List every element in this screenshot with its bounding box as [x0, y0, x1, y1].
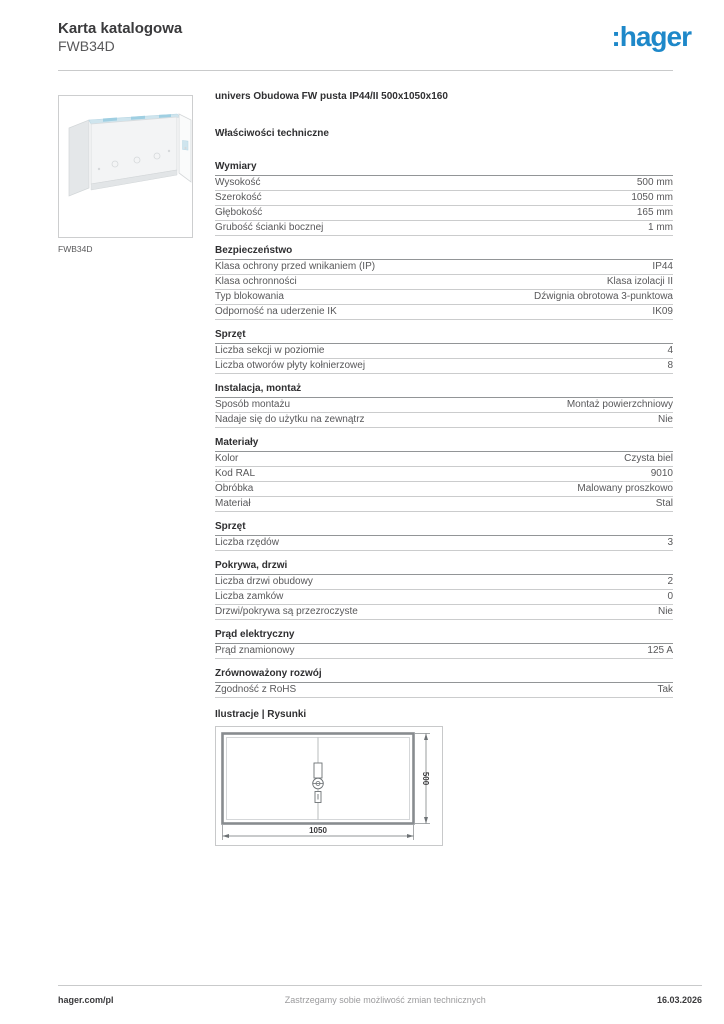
illustrations-heading: Ilustracje | Rysunki — [215, 708, 673, 721]
spec-label: Klasa ochronności — [215, 276, 297, 287]
spec-section: Instalacja, montaż Sposób montażuMontaż … — [215, 383, 673, 428]
spec-value: 8 — [667, 360, 673, 371]
section-title: Materiały — [215, 437, 673, 452]
spec-label: Głębokość — [215, 207, 262, 218]
spec-label: Szerokość — [215, 192, 262, 203]
spec-row: Grubość ścianki bocznej1 mm — [215, 221, 673, 236]
section-title: Bezpieczeństwo — [215, 245, 673, 260]
spec-value: 3 — [667, 537, 673, 548]
section-title: Zrównoważony rozwój — [215, 668, 673, 683]
spec-label: Materiał — [215, 498, 251, 509]
section-rows: Klasa ochrony przed wnikaniem (IP)IP44Kl… — [215, 260, 673, 320]
spec-value: Czysta biel — [624, 453, 673, 464]
spec-section: Prąd elektryczny Prąd znamionowy125 A — [215, 629, 673, 659]
product-title: univers Obudowa FW pusta IP44/II 500x105… — [215, 91, 673, 103]
spec-value: 1 mm — [648, 222, 673, 233]
spec-label: Sposób montażu — [215, 399, 290, 410]
spec-value: 125 A — [647, 645, 673, 656]
technical-drawing: 1050 500 — [215, 726, 443, 846]
drawing-width-dimension: 1050 — [309, 826, 327, 835]
footer-divider — [58, 985, 702, 986]
tech-properties-heading: Właściwości techniczne — [215, 128, 673, 140]
document-type-title: Karta katalogowa — [58, 20, 182, 38]
spec-value: Dźwignia obrotowa 3-punktowa — [534, 291, 673, 302]
spec-label: Klasa ochrony przed wnikaniem (IP) — [215, 261, 375, 272]
spec-section: Sprzęt Liczba sekcji w poziomie4Liczba o… — [215, 329, 673, 374]
spec-row: Liczba rzędów3 — [215, 536, 673, 551]
spec-label: Liczba zamków — [215, 591, 283, 602]
product-code-title: FWB34D — [58, 38, 182, 55]
spec-value: Malowany proszkowo — [577, 483, 673, 494]
section-rows: Wysokość500 mmSzerokość1050 mmGłębokość1… — [215, 176, 673, 236]
spec-value: 4 — [667, 345, 673, 356]
spec-label: Grubość ścianki bocznej — [215, 222, 323, 233]
spec-value: 165 mm — [637, 207, 673, 218]
footer-website-link[interactable]: hager.com/pl — [58, 995, 114, 1005]
spec-section: Wymiary Wysokość500 mmSzerokość1050 mmGł… — [215, 161, 673, 236]
spec-row: ObróbkaMalowany proszkowo — [215, 482, 673, 497]
footer: hager.com/pl Zastrzegamy sobie możliwość… — [58, 995, 702, 1005]
spec-label: Wysokość — [215, 177, 260, 188]
spec-row: Drzwi/pokrywa są przezroczysteNie — [215, 605, 673, 620]
spec-row: Wysokość500 mm — [215, 176, 673, 191]
section-title: Sprzęt — [215, 521, 673, 536]
product-image — [58, 95, 193, 238]
spec-row: Typ blokowaniaDźwignia obrotowa 3-punkto… — [215, 290, 673, 305]
spec-label: Nadaje się do użytku na zewnątrz — [215, 414, 365, 425]
dimension-drawing: 1050 500 — [216, 727, 442, 845]
product-image-caption: FWB34D — [58, 244, 92, 254]
spec-value: Nie — [658, 606, 673, 617]
spec-row: Kod RAL9010 — [215, 467, 673, 482]
section-rows: Zgodność z RoHSTak — [215, 683, 673, 698]
spec-value: Montaż powierzchniowy — [567, 399, 673, 410]
footer-disclaimer: Zastrzegamy sobie możliwość zmian techni… — [114, 995, 657, 1005]
spec-row: Szerokość1050 mm — [215, 191, 673, 206]
spec-value: IP44 — [652, 261, 673, 272]
spec-row: Liczba otworów płyty kołnierzowej8 — [215, 359, 673, 374]
spec-value: Stal — [656, 498, 673, 509]
spec-row: Głębokość165 mm — [215, 206, 673, 221]
spec-row: Klasa ochrony przed wnikaniem (IP)IP44 — [215, 260, 673, 275]
spec-value: 9010 — [651, 468, 673, 479]
drawing-height-dimension: 500 — [421, 772, 430, 786]
spec-label: Liczba sekcji w poziomie — [215, 345, 325, 356]
footer-date: 16.03.2026 — [657, 995, 702, 1005]
section-title: Instalacja, montaż — [215, 383, 673, 398]
spec-row: Liczba sekcji w poziomie4 — [215, 344, 673, 359]
spec-label: Zgodność z RoHS — [215, 684, 296, 695]
spec-value: Klasa izolacji II — [607, 276, 673, 287]
spec-label: Prąd znamionowy — [215, 645, 294, 656]
spec-row: Odporność na uderzenie IKIK09 — [215, 305, 673, 320]
spec-row: KolorCzysta biel — [215, 452, 673, 467]
spec-label: Drzwi/pokrywa są przezroczyste — [215, 606, 358, 617]
spec-row: Liczba zamków0 — [215, 590, 673, 605]
spec-row: Prąd znamionowy125 A — [215, 644, 673, 659]
spec-value: 2 — [667, 576, 673, 587]
spec-label: Liczba drzwi obudowy — [215, 576, 313, 587]
spec-label: Kolor — [215, 453, 238, 464]
section-title: Prąd elektryczny — [215, 629, 673, 644]
section-rows: Liczba rzędów3 — [215, 536, 673, 551]
spec-label: Odporność na uderzenie IK — [215, 306, 337, 317]
section-title: Pokrywa, drzwi — [215, 560, 673, 575]
spec-value: 0 — [667, 591, 673, 602]
spec-value: 1050 mm — [631, 192, 673, 203]
spec-section: Materiały KolorCzysta bielKod RAL9010Obr… — [215, 437, 673, 512]
section-title: Sprzęt — [215, 329, 673, 344]
spec-row: Klasa ochronnościKlasa izolacji II — [215, 275, 673, 290]
spec-row: Zgodność z RoHSTak — [215, 683, 673, 698]
spec-value: Tak — [657, 684, 673, 695]
section-rows: Sposób montażuMontaż powierzchniowyNadaj… — [215, 398, 673, 428]
section-rows: Liczba sekcji w poziomie4Liczba otworów … — [215, 344, 673, 374]
spec-label: Kod RAL — [215, 468, 255, 479]
spec-label: Typ blokowania — [215, 291, 284, 302]
spec-row: MateriałStal — [215, 497, 673, 512]
spec-row: Nadaje się do użytku na zewnątrzNie — [215, 413, 673, 428]
spec-value: Nie — [658, 414, 673, 425]
spec-row: Sposób montażuMontaż powierzchniowy — [215, 398, 673, 413]
main-content: univers Obudowa FW pusta IP44/II 500x105… — [215, 91, 673, 846]
spec-label: Liczba rzędów — [215, 537, 279, 548]
spec-section: Zrównoważony rozwój Zgodność z RoHSTak — [215, 668, 673, 698]
section-rows: Liczba drzwi obudowy2Liczba zamków0Drzwi… — [215, 575, 673, 620]
spec-value: IK09 — [652, 306, 673, 317]
hager-logo: :hager — [611, 22, 691, 52]
section-rows: KolorCzysta bielKod RAL9010ObróbkaMalowa… — [215, 452, 673, 512]
section-title: Wymiary — [215, 161, 673, 176]
spec-value: 500 mm — [637, 177, 673, 188]
spec-label: Obróbka — [215, 483, 253, 494]
spec-section: Bezpieczeństwo Klasa ochrony przed wnika… — [215, 245, 673, 320]
spec-row: Liczba drzwi obudowy2 — [215, 575, 673, 590]
spec-section: Sprzęt Liczba rzędów3 — [215, 521, 673, 551]
section-rows: Prąd znamionowy125 A — [215, 644, 673, 659]
datasheet-page: Karta katalogowa FWB34D :hager — [0, 0, 724, 1024]
enclosure-photo-illustration — [59, 96, 192, 237]
header-divider — [58, 70, 673, 71]
spec-label: Liczba otworów płyty kołnierzowej — [215, 360, 365, 371]
spec-section: Pokrywa, drzwi Liczba drzwi obudowy2Licz… — [215, 560, 673, 620]
header: Karta katalogowa FWB34D — [58, 20, 182, 55]
tech-sections: Wymiary Wysokość500 mmSzerokość1050 mmGł… — [215, 161, 673, 698]
